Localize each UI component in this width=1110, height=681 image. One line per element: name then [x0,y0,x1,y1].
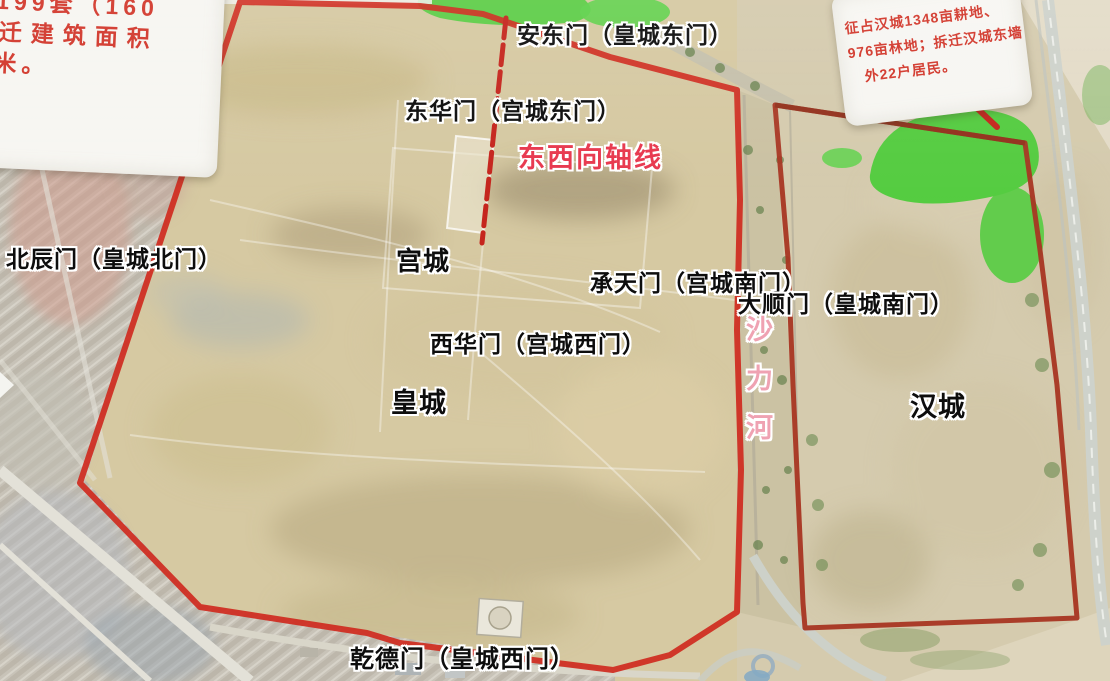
label-hancheng: 汉城 [910,392,966,423]
gate-platform-ruin [477,599,523,638]
label-gongcheng: 宫城 [396,247,450,277]
satellite-map-photo: 屋199套（160 拆迁建筑面积 方米。 征占汉城1348亩耕地、 976亩林地… [0,0,1110,681]
label-axis: 东西向轴线 [518,143,663,174]
label-gate-donghuamen: 东华门（宫城东门） [405,98,621,124]
label-huangcheng: 皇城 [391,388,447,419]
label-gate-dashunmen: 大顺门（皇城南门） [738,291,954,317]
label-river-shalihe: 沙力河 [741,315,772,462]
label-gate-andongmen: 安东门（皇城东门） [517,22,733,48]
label-gate-qiandemen: 乾德门（皇城西门） [350,646,575,674]
demolition-info-sign: 屋199套（160 拆迁建筑面积 方米。 [0,0,227,178]
label-gate-beichenmen: 北辰门（皇城北门） [6,246,222,272]
label-gate-xihuamen: 西华门（宫城西门） [430,331,646,357]
